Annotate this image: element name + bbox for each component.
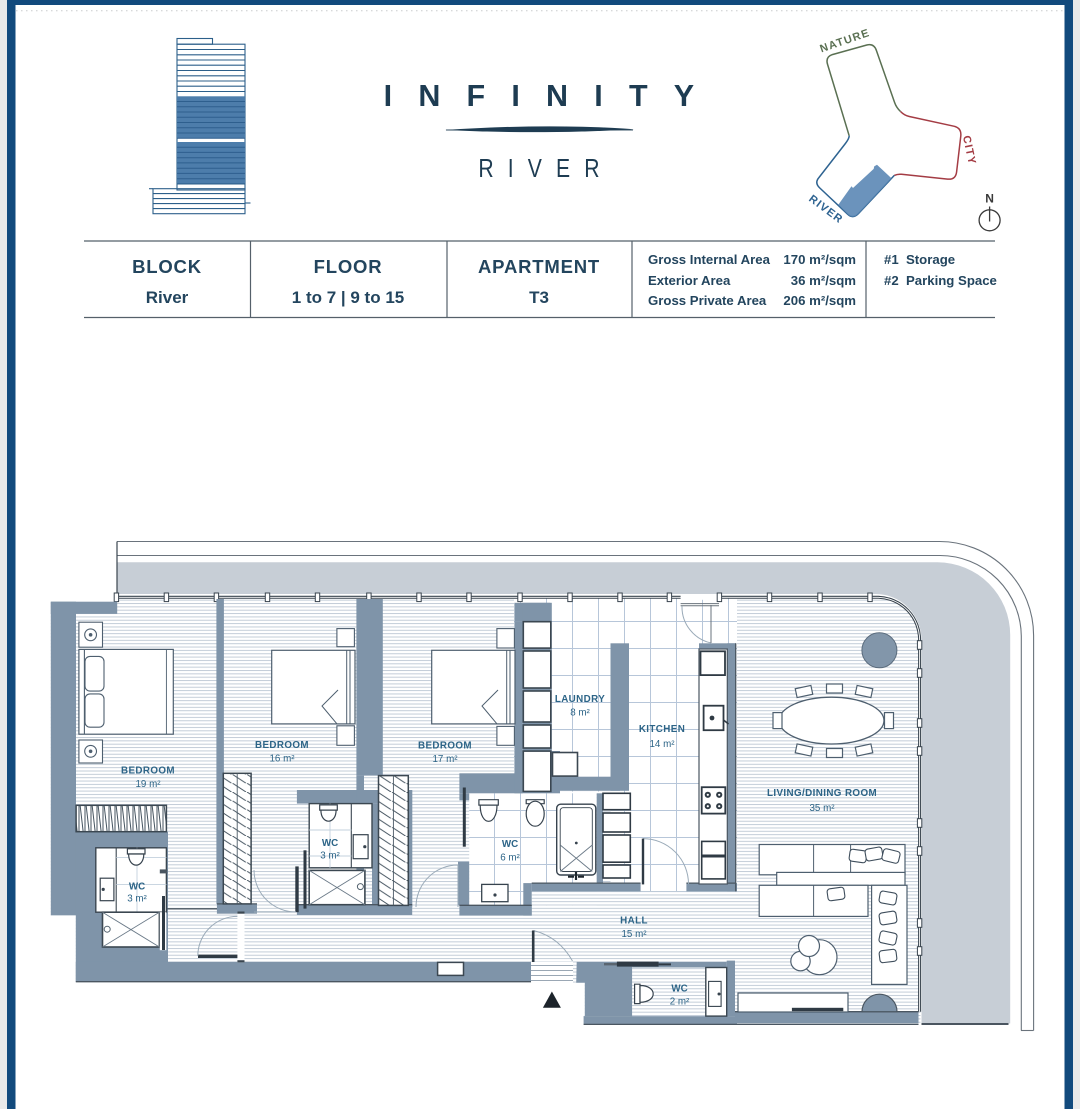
svg-text:19 m²: 19 m² [135, 779, 161, 790]
svg-text:1 to 7 | 9 to 15: 1 to 7 | 9 to 15 [292, 288, 404, 307]
svg-text:BEDROOM: BEDROOM [255, 740, 309, 751]
svg-text:2 m²: 2 m² [670, 997, 690, 1008]
svg-text:8 m²: 8 m² [570, 708, 590, 719]
svg-text:206 m²/sqm: 206 m²/sqm [783, 293, 856, 308]
svg-text:APARTMENT: APARTMENT [478, 256, 600, 277]
svg-text:WC: WC [502, 839, 518, 850]
svg-text:BLOCK: BLOCK [132, 256, 202, 277]
svg-text:15 m²: 15 m² [621, 929, 647, 940]
svg-text:River: River [146, 288, 189, 307]
svg-text:N: N [985, 192, 994, 206]
svg-text:#1 Storage: #1 Storage [884, 252, 955, 267]
svg-text:14 m²: 14 m² [649, 739, 675, 750]
svg-text:BEDROOM: BEDROOM [418, 741, 472, 752]
svg-text:Gross Internal Area: Gross Internal Area [648, 252, 771, 267]
svg-text:Gross Private Area: Gross Private Area [648, 293, 767, 308]
svg-text:3 m²: 3 m² [127, 894, 147, 905]
svg-text:35 m²: 35 m² [809, 803, 835, 814]
svg-text:RIVER: RIVER [478, 154, 613, 182]
svg-text:#2 Parking Space: #2 Parking Space [884, 273, 997, 288]
svg-text:17 m²: 17 m² [432, 754, 458, 765]
svg-text:170 m²/sqm: 170 m²/sqm [783, 252, 856, 267]
svg-text:WC: WC [322, 838, 338, 849]
svg-text:INFINITY: INFINITY [384, 79, 721, 113]
svg-text:KITCHEN: KITCHEN [639, 724, 685, 735]
svg-text:LIVING/DINING ROOM: LIVING/DINING ROOM [767, 788, 877, 799]
svg-text:16 m²: 16 m² [269, 754, 295, 765]
svg-text:36 m²/sqm: 36 m²/sqm [791, 273, 856, 288]
svg-text:6 m²: 6 m² [500, 853, 520, 864]
svg-text:T3: T3 [529, 288, 549, 307]
svg-text:WC: WC [129, 882, 145, 893]
svg-text:FLOOR: FLOOR [314, 256, 383, 277]
svg-text:HALL: HALL [620, 916, 648, 927]
svg-text:3 m²: 3 m² [320, 851, 340, 862]
svg-text:Exterior Area: Exterior Area [648, 273, 731, 288]
svg-text:LAUNDRY: LAUNDRY [555, 694, 605, 705]
svg-text:BEDROOM: BEDROOM [121, 766, 175, 777]
svg-text:WC: WC [671, 984, 687, 995]
